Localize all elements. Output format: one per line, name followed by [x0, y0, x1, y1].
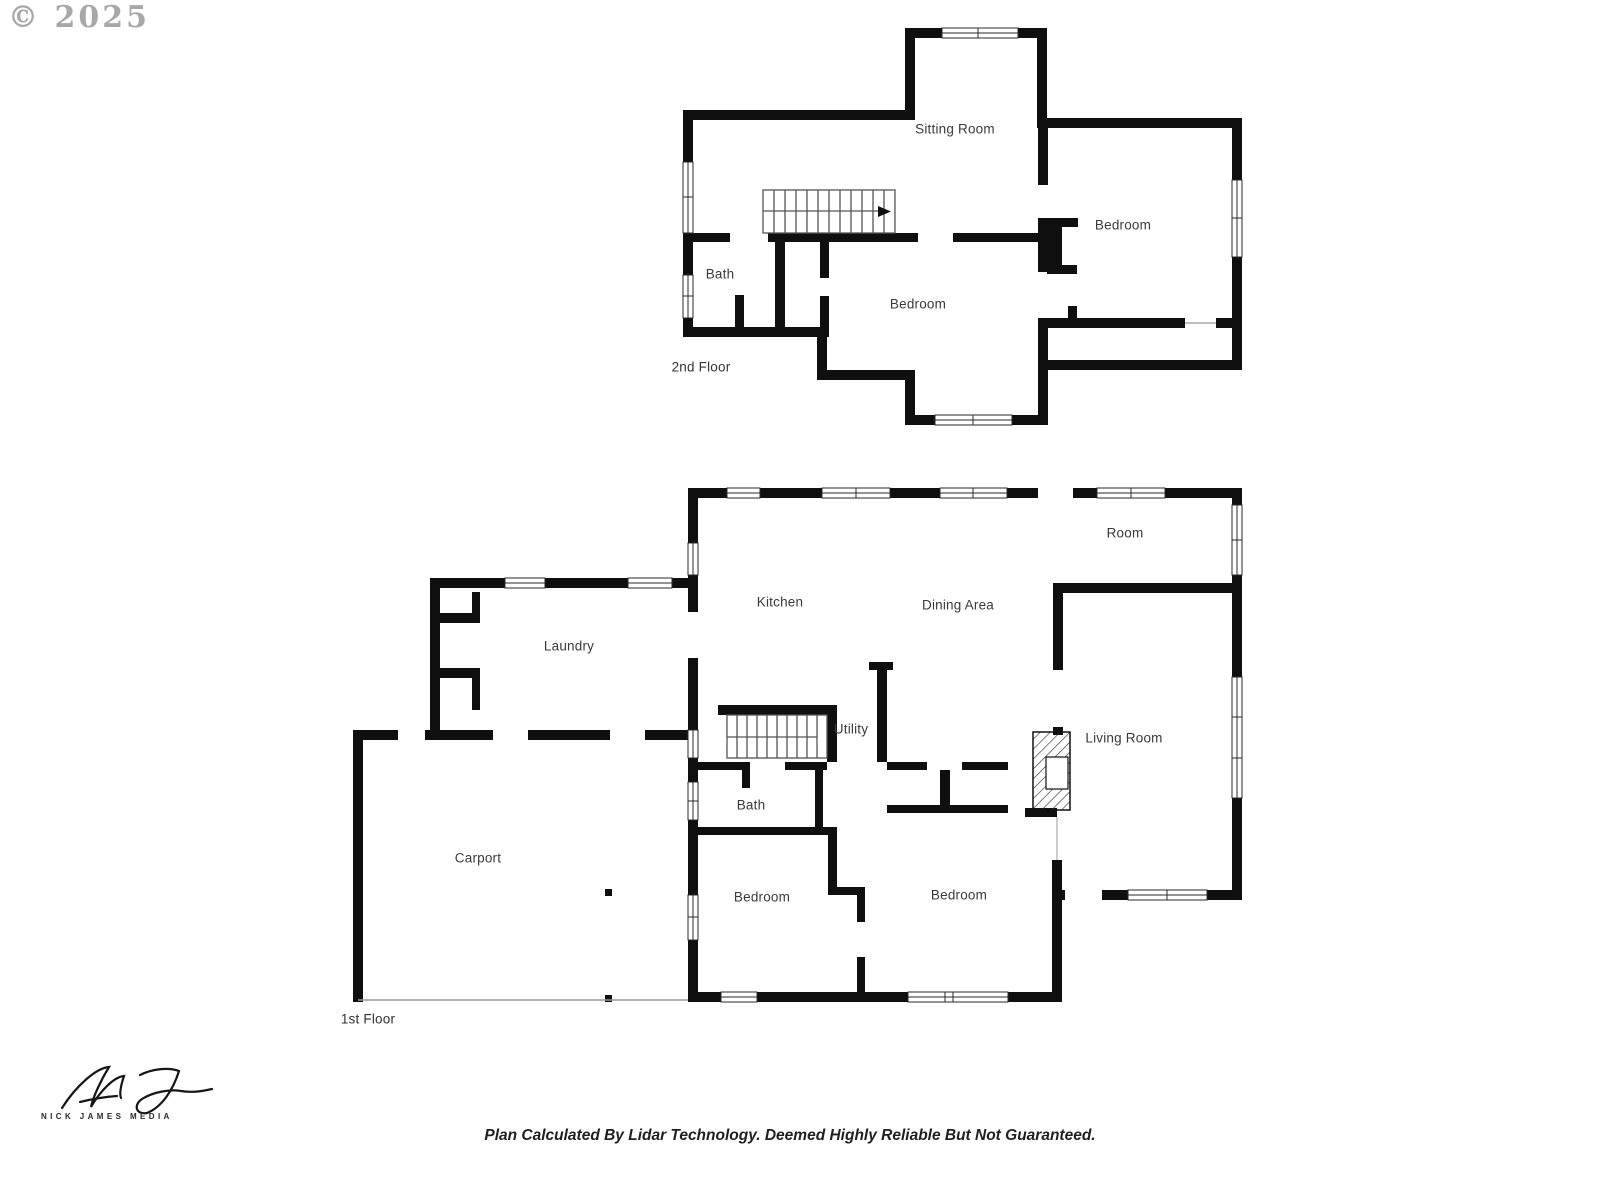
room-label-carport: Carport — [455, 851, 501, 866]
room-label-living-room: Living Room — [1085, 731, 1162, 746]
room-label-room: Room — [1107, 526, 1144, 541]
floor-title-2nd: 2nd Floor — [672, 360, 731, 375]
second-floor-plan — [683, 28, 1242, 425]
staircase-1st-floor — [727, 715, 827, 758]
room-label-sitting-room: Sitting Room — [915, 122, 995, 137]
room-label-bath-2f: Bath — [706, 267, 735, 282]
floor-title-1st: 1st Floor — [341, 1012, 395, 1027]
room-label-kitchen: Kitchen — [757, 595, 803, 610]
room-label-laundry: Laundry — [544, 639, 594, 654]
staircase-2nd-floor — [763, 190, 895, 233]
room-label-utility: Utility — [834, 722, 868, 737]
fireplace — [1033, 732, 1070, 810]
floorplan-page: © 2025 — [0, 0, 1600, 1200]
room-label-bedroom-2f-center: Bedroom — [890, 297, 946, 312]
room-label-bedroom-1f-left: Bedroom — [734, 890, 790, 905]
brand-name-text: NICK JAMES MEDIA — [41, 1112, 173, 1121]
room-label-dining-area: Dining Area — [922, 598, 994, 613]
room-label-bedroom-2f-right: Bedroom — [1095, 218, 1151, 233]
room-label-bedroom-1f-right: Bedroom — [931, 888, 987, 903]
disclaimer-text: Plan Calculated By Lidar Technology. Dee… — [0, 1127, 1580, 1145]
room-label-bath-1f: Bath — [737, 798, 766, 813]
signature-scribble — [62, 1067, 212, 1113]
